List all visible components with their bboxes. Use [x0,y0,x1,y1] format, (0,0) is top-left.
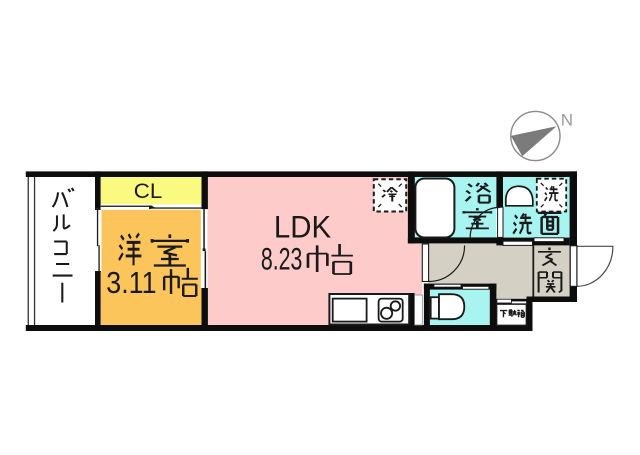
svg-text:8.23: 8.23 [261,241,303,277]
svg-text:LDK: LDK [274,209,331,245]
svg-text:3.11: 3.11 [106,266,156,300]
svg-text:CL: CL [134,178,162,203]
svg-text:N: N [561,111,573,130]
